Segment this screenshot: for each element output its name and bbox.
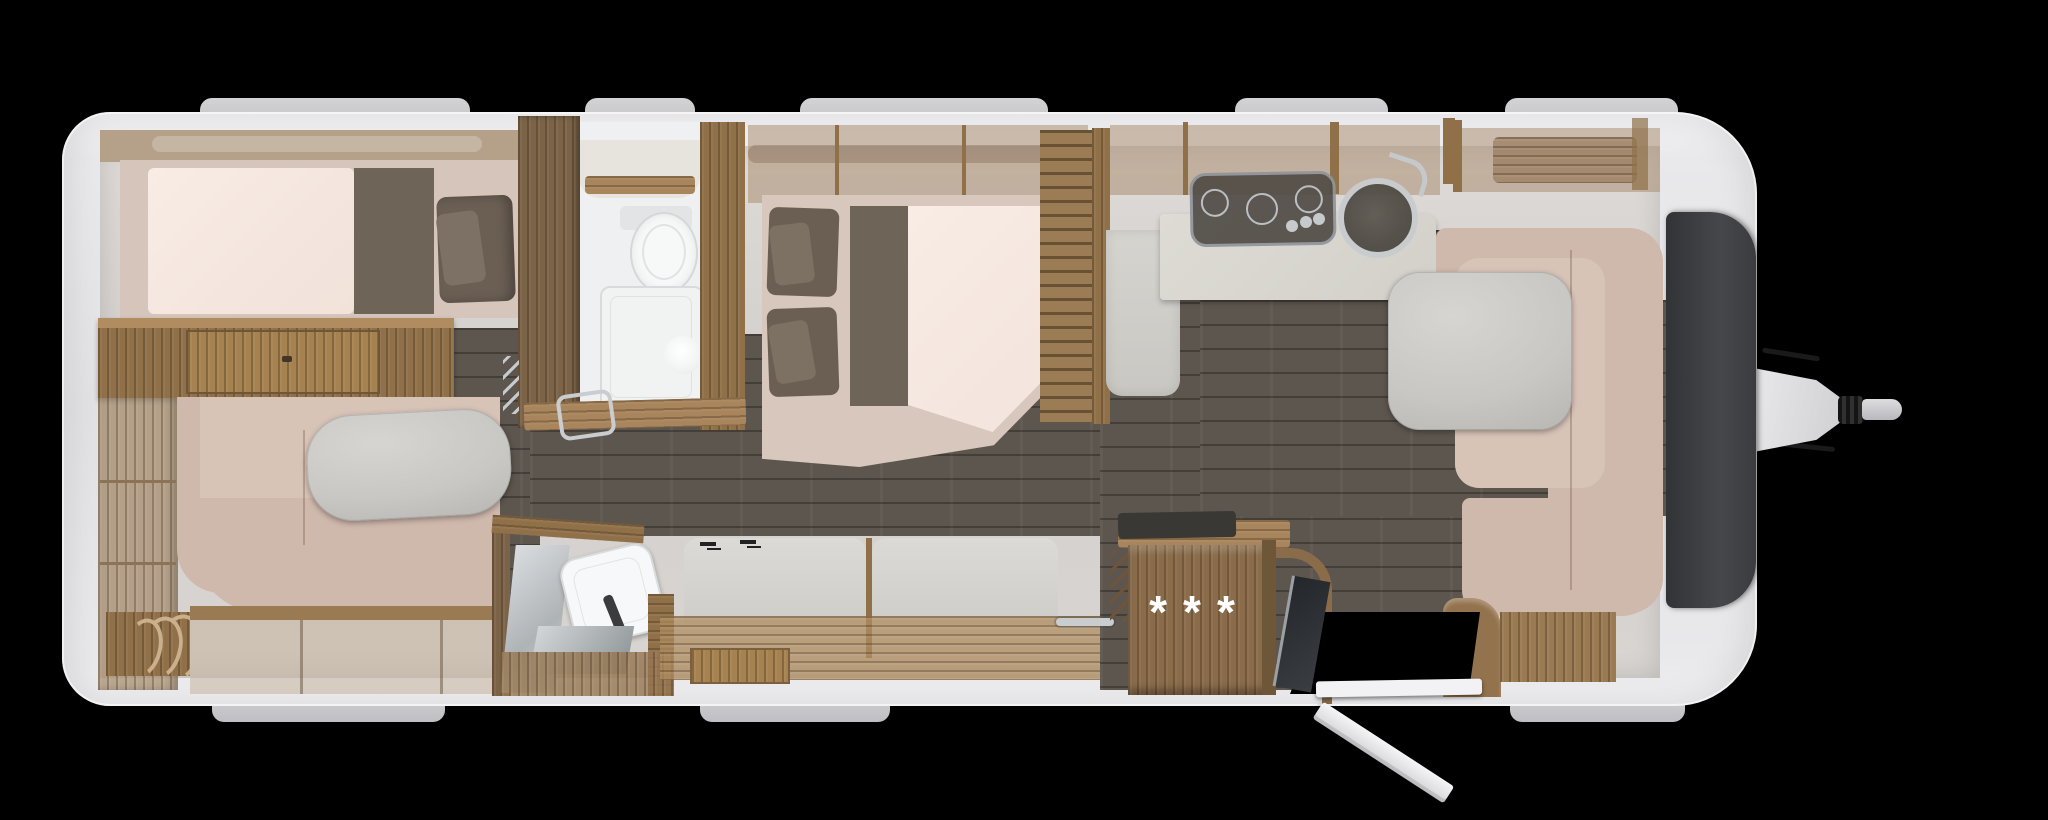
dinette-partition — [1632, 118, 1648, 190]
mid-overhead-cabinet — [748, 125, 1088, 203]
shelf-line — [100, 562, 176, 565]
seat-seam — [303, 430, 305, 545]
front-panel — [1666, 212, 1756, 608]
corner-cabinet — [106, 612, 190, 676]
towel-bar-icon — [555, 388, 617, 441]
rear-bed-blanket — [354, 168, 434, 314]
bathroom-door-panel — [518, 116, 580, 428]
clothes-hook-icon — [740, 540, 756, 544]
bed-runner — [850, 206, 908, 406]
french-bed-pillow-small — [768, 222, 815, 286]
burner-icon — [1201, 189, 1229, 217]
clothes-hook-icon — [700, 542, 716, 546]
mid-overhead-shadow — [748, 145, 1088, 163]
bathroom-shelf — [585, 176, 695, 194]
wardrobe-back-panel — [684, 538, 866, 624]
rear-overhead-cabinet-inset — [152, 136, 482, 152]
wardrobe-back-panel — [872, 538, 1058, 624]
concertina-blind-icon — [503, 356, 519, 414]
bathroom-wall-right — [700, 122, 745, 430]
cabinet-divider — [835, 125, 839, 203]
burner-icon — [1246, 193, 1279, 226]
concertina-door-icon — [1110, 550, 1128, 622]
cabinet-flap-dark — [1118, 511, 1236, 539]
washroom-base-frame — [500, 652, 674, 696]
bench-divider — [440, 620, 443, 694]
hob-controls-icon — [1286, 220, 1298, 232]
rear-lounge-table — [304, 407, 513, 524]
dinette-partition — [1443, 118, 1455, 184]
caravan-floorplan-scene: *** — [0, 0, 2048, 820]
rear-bed-mattress — [148, 168, 354, 314]
coupling-head — [1862, 399, 1902, 420]
toilet-seat-line — [642, 224, 686, 280]
hitch-handle-icon — [1762, 347, 1820, 361]
shelf-line — [100, 480, 176, 483]
dinette-shelf-board — [1493, 137, 1637, 183]
wardrobe-drawer — [690, 648, 790, 684]
hitch-bellows — [1838, 396, 1864, 424]
shower-light-icon — [664, 336, 702, 374]
towel-rail-icon — [1056, 618, 1114, 626]
entrance-door-open — [1313, 702, 1455, 804]
dinette-bench-bottom — [1462, 498, 1663, 616]
rear-sideboard-top-lip — [98, 318, 454, 328]
cabinet-divider — [962, 125, 966, 203]
kitchen-partition — [1183, 122, 1188, 195]
hob-icon — [1189, 171, 1336, 248]
dinette-bench-front — [1500, 612, 1616, 682]
dinette-table — [1388, 272, 1572, 430]
drawer-handle-icon — [282, 356, 292, 362]
burner-icon — [1295, 185, 1323, 213]
rear-bench-front — [190, 620, 510, 694]
door-sill — [1316, 679, 1482, 698]
rear-sideboard-drawer — [186, 330, 380, 394]
options-marker: *** — [1130, 582, 1270, 642]
bench-divider — [300, 620, 303, 694]
drawbar-cover — [1752, 366, 1844, 454]
rear-bench-trim — [190, 606, 502, 620]
